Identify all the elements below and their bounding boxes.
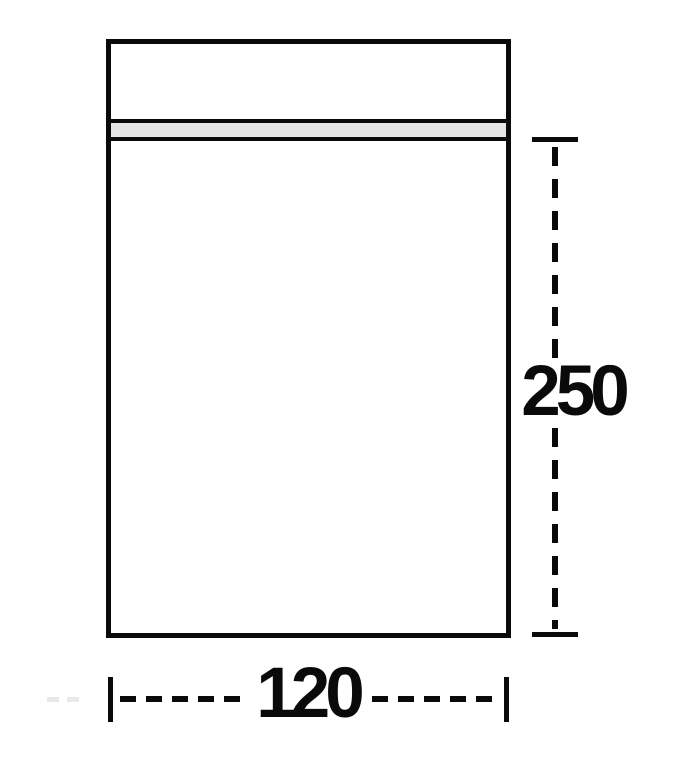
zip-seal-strip	[111, 119, 506, 141]
width-dim-left-tick	[108, 677, 113, 722]
height-dim-label: 250	[513, 356, 633, 427]
width-dim-dashed-line-right	[372, 696, 502, 702]
watermark-remnant	[47, 697, 83, 702]
bag-outline	[106, 39, 511, 638]
width-dim-label: 120	[248, 658, 368, 729]
height-dim-bottom-tick	[532, 632, 578, 637]
height-dim-dashed-line-lower	[552, 428, 558, 629]
height-dim-top-tick	[532, 137, 578, 142]
width-dim-dashed-line-left	[120, 696, 246, 702]
width-dim-right-tick	[504, 677, 509, 722]
dimension-diagram: 250 120	[0, 0, 688, 767]
height-dim-dashed-line-upper	[552, 147, 558, 365]
